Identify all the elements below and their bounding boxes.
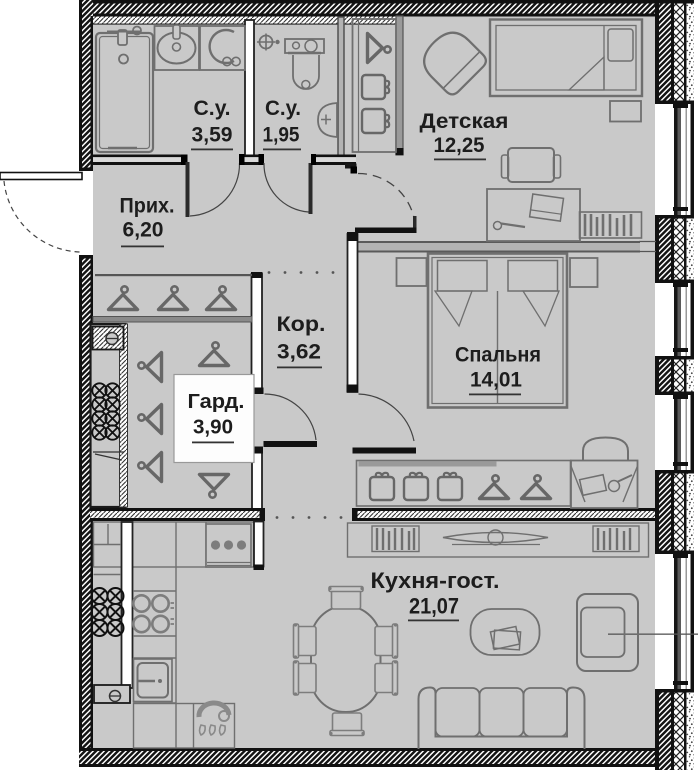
svg-text:С.у.: С.у. — [265, 97, 301, 120]
svg-text:14,01: 14,01 — [470, 369, 522, 392]
svg-text:Прих.: Прих. — [120, 195, 175, 218]
svg-text:12,25: 12,25 — [434, 133, 485, 157]
svg-text:3,59: 3,59 — [192, 124, 233, 147]
svg-text:Кухня-гост.: Кухня-гост. — [371, 568, 500, 593]
svg-text:3,62: 3,62 — [277, 341, 321, 364]
svg-text:Кор.: Кор. — [277, 313, 326, 336]
svg-text:6,20: 6,20 — [123, 219, 164, 242]
svg-text:1,95: 1,95 — [263, 124, 300, 147]
svg-text:21,07: 21,07 — [409, 594, 459, 619]
svg-text:Гард.: Гард. — [188, 390, 245, 413]
svg-text:Спальня: Спальня — [455, 344, 541, 367]
svg-text:Детская: Детская — [420, 109, 509, 133]
svg-text:3,90: 3,90 — [193, 416, 233, 439]
svg-text:С.у.: С.у. — [194, 97, 231, 120]
